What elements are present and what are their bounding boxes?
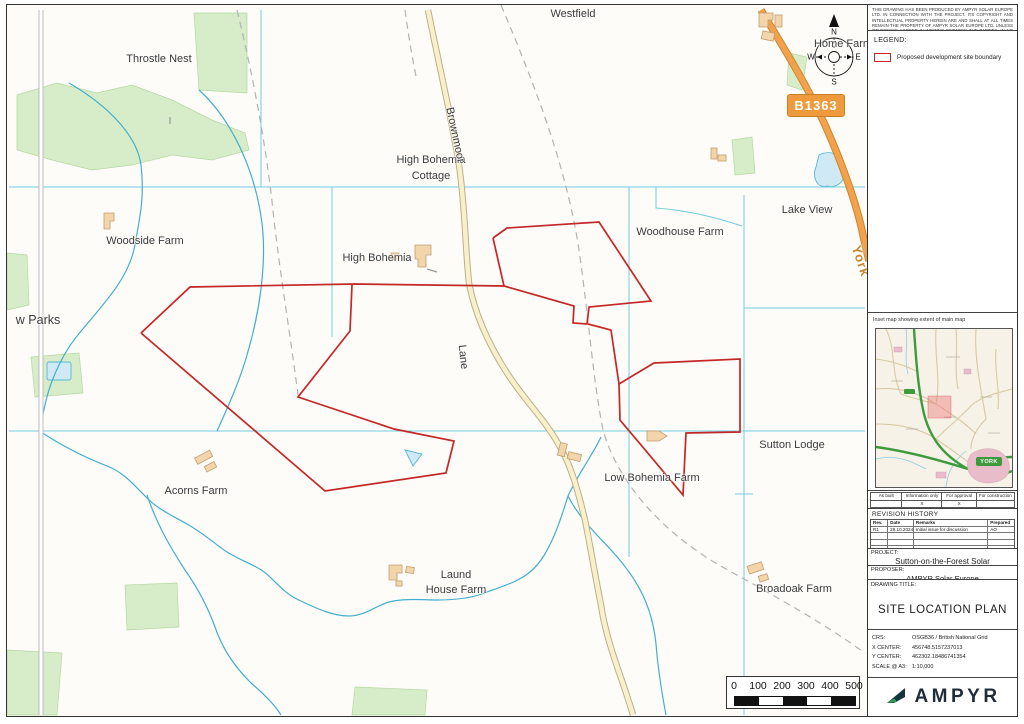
status-column-header: As built bbox=[871, 493, 902, 501]
meta-key: X CENTER: bbox=[872, 644, 912, 654]
ampyr-logo-icon bbox=[884, 685, 908, 709]
scale-tick: 300 bbox=[797, 680, 815, 692]
status-value-cell: X bbox=[902, 501, 942, 508]
inset-map-caption: Inset map showing extent of main map bbox=[873, 317, 965, 323]
revision-history-table: Rev.DateRemarksPrepared byR129.10.2024In… bbox=[870, 519, 1015, 549]
woodland-areas bbox=[7, 13, 807, 715]
project-block: PROJECT: Sutton-on-the-Forest Solar bbox=[868, 549, 1017, 566]
logo-block: AMPYR bbox=[868, 678, 1017, 716]
revision-row bbox=[871, 540, 1014, 547]
meta-key: Y CENTER: bbox=[872, 653, 912, 663]
drawing-sheet: N W E S B1363 WestfieldThrostle NestHome… bbox=[6, 4, 1018, 717]
brownmoor-lane-road bbox=[428, 10, 633, 715]
meta-value: OSGB36 / British National Grid bbox=[912, 634, 988, 644]
b1363-road-badge: B1363 bbox=[787, 94, 845, 117]
track-paths bbox=[237, 5, 865, 653]
legend-item-site-boundary: Proposed development site boundary bbox=[874, 53, 1011, 62]
revision-cell: Initial issue for discussion bbox=[914, 527, 988, 534]
issue-status-block: As builtInformation onlyFor approvalFor … bbox=[868, 491, 1017, 509]
meta-row: SCALE @ A3:1:10,000 bbox=[872, 663, 1017, 673]
revision-cell: Rev. bbox=[871, 520, 888, 527]
meta-value: 456748.5157237013 bbox=[912, 644, 962, 654]
drawing-title-block: DRAWING TITLE: SITE LOCATION PLAN bbox=[868, 580, 1017, 630]
scale-segment bbox=[735, 697, 759, 705]
scale-tick: 0 bbox=[731, 680, 737, 692]
revision-cell: Prepared by bbox=[988, 520, 1014, 527]
compass-south-label: S bbox=[831, 78, 836, 87]
compass-west-label: W bbox=[807, 53, 815, 62]
scale-tick: 400 bbox=[821, 680, 839, 692]
revision-cell bbox=[871, 540, 888, 547]
status-column-header: For approval bbox=[942, 493, 976, 501]
compass-rose bbox=[815, 14, 853, 76]
revision-cell: R1 bbox=[871, 527, 888, 534]
title-block-panel: THIS DRAWING HAS BEEN PRODUCED BY AMPYR … bbox=[868, 5, 1017, 716]
meta-key: CRS: bbox=[872, 634, 912, 644]
basemap-geometry bbox=[7, 5, 868, 716]
revision-history-block: REVISION HISTORY Rev.DateRemarksPrepared… bbox=[868, 509, 1017, 549]
site-boundary bbox=[141, 222, 740, 495]
york-city-badge: YORK bbox=[976, 457, 1002, 466]
legend-title: LEGEND: bbox=[874, 37, 1011, 44]
scale-bar-segments bbox=[734, 696, 856, 706]
revision-cell bbox=[888, 540, 914, 547]
scale-bar-ticks: 0100200300400500 bbox=[734, 680, 854, 693]
revision-cell bbox=[988, 533, 1014, 540]
meta-row: CRS:OSGB36 / British National Grid bbox=[872, 634, 1017, 644]
meta-key: SCALE @ A3: bbox=[872, 663, 912, 673]
compass-north-label: N bbox=[831, 28, 837, 37]
drawing-title-value: SITE LOCATION PLAN bbox=[871, 604, 1014, 616]
drawing-title-label: DRAWING TITLE: bbox=[871, 582, 1014, 588]
scale-segment bbox=[759, 697, 783, 705]
revision-cell bbox=[914, 540, 988, 547]
revision-row bbox=[871, 533, 1014, 540]
ampyr-logo-text: AMPYR bbox=[914, 686, 1000, 708]
scale-segment bbox=[831, 697, 855, 705]
revision-cell bbox=[914, 533, 988, 540]
buildings bbox=[104, 13, 782, 586]
revision-row: Rev.DateRemarksPrepared by bbox=[871, 520, 1014, 527]
scale-tick: 200 bbox=[773, 680, 791, 692]
crs-meta-block: CRS:OSGB36 / British National GridX CENT… bbox=[868, 630, 1017, 678]
status-value-cell bbox=[977, 501, 1014, 508]
meta-value: 1:10,000 bbox=[912, 663, 933, 673]
legend-item-label: Proposed development site boundary bbox=[897, 54, 1001, 61]
issue-status-table: As builtInformation onlyFor approvalFor … bbox=[870, 492, 1015, 508]
inset-map: YORK bbox=[875, 328, 1013, 488]
revision-cell bbox=[888, 533, 914, 540]
revision-history-title: REVISION HISTORY bbox=[872, 511, 1015, 518]
revision-cell: Remarks bbox=[914, 520, 988, 527]
status-value-cell bbox=[871, 501, 902, 508]
revision-cell: 29.10.2024 bbox=[888, 527, 914, 534]
b1363-road bbox=[761, 10, 868, 261]
project-value: Sutton-on-the-Forest Solar bbox=[871, 557, 1014, 566]
compass-east-label: E bbox=[855, 53, 860, 62]
proposer-block: PROPOSER: AMPYR Solar Europe bbox=[868, 566, 1017, 580]
scale-segment bbox=[783, 697, 807, 705]
proposer-label: PROPOSER: bbox=[871, 567, 1014, 573]
meta-row: Y CENTER:462302.18486741354 bbox=[872, 653, 1017, 663]
status-value-cell: X bbox=[942, 501, 976, 508]
status-column-header: For construction bbox=[977, 493, 1014, 501]
main-map: N W E S B1363 WestfieldThrostle NestHome… bbox=[7, 5, 868, 716]
inset-map-block: Inset map showing extent of main map bbox=[868, 313, 1017, 491]
status-column-header: Information only bbox=[902, 493, 942, 501]
legend-block: LEGEND: Proposed development site bounda… bbox=[868, 31, 1017, 313]
meta-value: 462302.18486741354 bbox=[912, 653, 966, 663]
extent-highlight bbox=[928, 396, 951, 418]
meta-row: X CENTER:456748.5157237013 bbox=[872, 644, 1017, 654]
scale-tick: 100 bbox=[749, 680, 767, 692]
scale-segment bbox=[807, 697, 831, 705]
project-label: PROJECT: bbox=[871, 550, 1014, 556]
revision-cell bbox=[988, 540, 1014, 547]
scale-bar: 0100200300400500 bbox=[726, 676, 860, 709]
revision-row: R129.10.2024Initial issue for discussion… bbox=[871, 527, 1014, 534]
disclaimer-block: THIS DRAWING HAS BEEN PRODUCED BY AMPYR … bbox=[868, 5, 1017, 31]
site-boundary-swatch bbox=[874, 53, 891, 62]
scale-tick: 500 bbox=[845, 680, 863, 692]
revision-cell: Date bbox=[888, 520, 914, 527]
revision-cell: AO bbox=[988, 527, 1014, 534]
revision-cell bbox=[871, 533, 888, 540]
